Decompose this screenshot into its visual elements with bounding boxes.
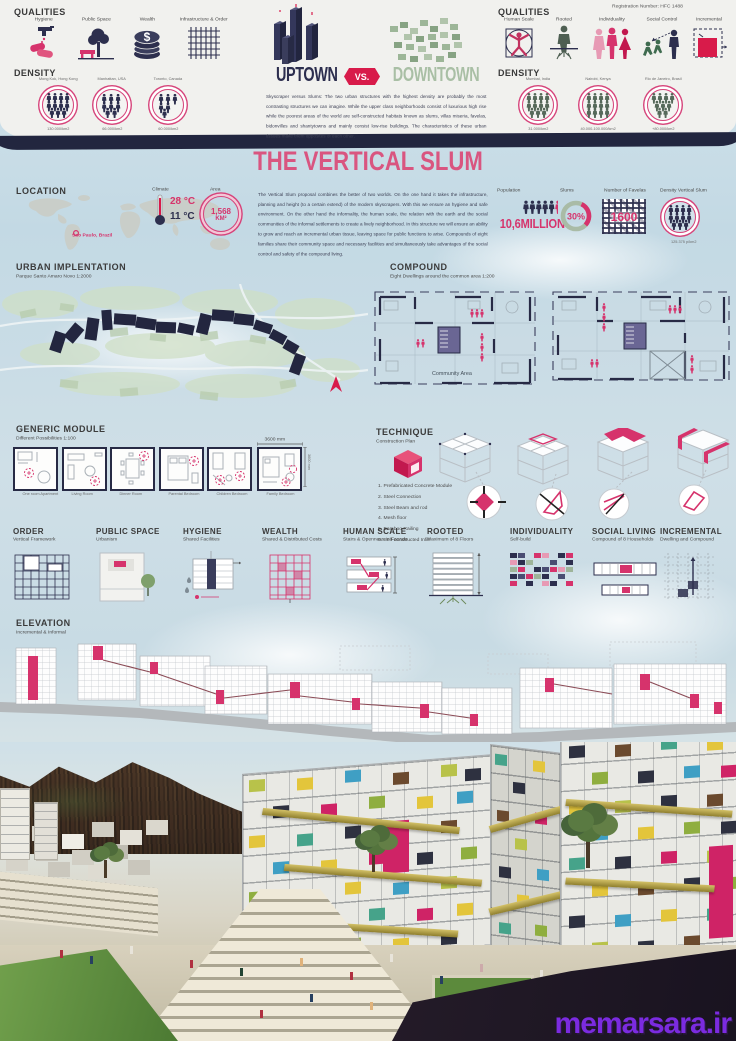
density-rio: Rio de Janeiro, Brasil +80.000/km2 — [630, 77, 696, 134]
render-photo: memarsara.ir — [0, 742, 736, 1041]
module-dim-horizontal: 3600 mm — [265, 436, 296, 442]
vs-label: VS. — [355, 72, 370, 82]
tree — [372, 850, 375, 872]
density-manhattan: Manhattan, USA 66.000/km2 — [82, 77, 142, 134]
city-name: Manhattan, USA — [98, 77, 126, 81]
elevation-title: ELEVATION — [16, 618, 71, 628]
quality-public-space: Public Space — [74, 16, 118, 61]
rooted-diagram — [427, 551, 487, 605]
social-living-diagram — [592, 555, 658, 609]
left-mid-building — [34, 802, 58, 860]
density-value: 40.000-100.000/km2 — [580, 127, 615, 131]
vertical-slum-density-label: Density Vertical Slum — [660, 187, 707, 193]
people-cluster-icon — [99, 92, 125, 118]
quality-label: Incremental — [696, 16, 722, 22]
compound-plan-1: Community Area — [372, 288, 538, 394]
module-one-room — [13, 447, 58, 491]
quality-hygiene: Hygiene — [24, 16, 64, 61]
principle-individuality: INDIVIDUALITY Self-build — [510, 527, 586, 558]
principle-title: INDIVIDUALITY — [510, 527, 586, 536]
gold-ramp — [489, 805, 566, 833]
people-on-plaza — [60, 950, 63, 958]
quality-label: Social Control — [647, 16, 678, 22]
principle-title: PUBLIC SPACE — [96, 527, 174, 536]
city-name: Mong Kok, Hong Kong — [39, 77, 78, 81]
density-circle — [582, 89, 614, 121]
poster: QUALITIES Hygiene Public Space Wealth $ … — [0, 0, 736, 1041]
module-label-6: Family Bedroom — [266, 492, 289, 496]
module-label-1: One room Apartment — [22, 492, 45, 496]
module-label-2: Living Room — [71, 492, 94, 496]
principle-public-space: PUBLIC SPACE Urbanism — [96, 527, 174, 605]
main-building-corner-facade — [490, 744, 564, 973]
temp-low: 11 °C — [170, 211, 195, 222]
density-value: +80.000/km2 — [652, 127, 674, 131]
density-circle — [152, 89, 184, 121]
svg-text:Community Area: Community Area — [432, 371, 472, 377]
module-dinner-room — [110, 447, 155, 491]
individuality-pixel-diagram — [510, 553, 517, 558]
population-label: Population — [497, 187, 520, 193]
principle-title: ORDER — [13, 527, 87, 536]
wealth-diagram — [262, 551, 318, 605]
principle-subtitle: Compound of 8 Households — [592, 536, 642, 542]
elevation-drawing — [0, 638, 736, 748]
left-tall-building — [0, 788, 30, 860]
density-circle — [647, 89, 679, 121]
temp-high: 28 °C — [170, 196, 195, 207]
principle-wealth: WEALTH Shared & Distributed Costs — [262, 527, 342, 605]
tree — [586, 838, 590, 868]
principle-order: ORDER Vertical Framework — [13, 527, 87, 603]
construction-sequence — [436, 428, 736, 522]
quality-incremental: Incremental — [686, 16, 732, 61]
urban-title: URBAN IMPLENTATION — [16, 262, 126, 272]
density-circle — [522, 89, 554, 121]
principle-title: ROOTED — [427, 527, 503, 536]
svg-text:30%: 30% — [567, 212, 585, 222]
downtown-blocks-icon — [390, 26, 398, 32]
vs-badge: VS. — [344, 68, 380, 85]
svg-text:$: $ — [144, 30, 151, 44]
gold-ramp — [488, 891, 566, 916]
quality-label: Human Scale — [504, 16, 534, 22]
incremental-diagram — [660, 551, 720, 605]
people-cluster-icon — [525, 92, 551, 118]
module-living-room — [62, 447, 107, 491]
watermark-link[interactable]: memarsara.ir — [555, 1007, 731, 1041]
quality-label: Wealth — [139, 16, 154, 22]
quality-social-control: Social Control — [636, 16, 688, 61]
density-value: 66.000/km2 — [102, 127, 122, 131]
quality-human-scale: Human Scale — [496, 16, 542, 61]
slums-donut: 30% — [558, 198, 594, 234]
main-title: THE VERTICAL SLUM — [0, 146, 736, 177]
area-label: Area — [210, 186, 220, 192]
people-cluster-icon — [155, 92, 181, 118]
city-name: Nairobi, Kenya — [585, 77, 610, 81]
population-people-icons — [494, 200, 558, 215]
location-marker-label: Sao Paulo, Brazil — [72, 232, 112, 238]
principle-subtitle: Shared & Distributed Costs — [262, 536, 312, 542]
density-mumbai: Mumbai, India 31.000/km2 — [508, 77, 568, 134]
favelas-qr-graphic: 1600 — [602, 199, 646, 234]
people-cluster-icon — [585, 92, 611, 118]
density-value: 60.000/km2 — [158, 127, 178, 131]
density-circle — [42, 89, 74, 121]
upper-stairs — [0, 872, 158, 937]
principle-rooted: ROOTED Maximum of 8 Floors — [427, 527, 503, 605]
tree-canopy — [94, 846, 110, 860]
module-family-bedroom — [257, 447, 302, 491]
principle-subtitle: Stairs & Openness in Facade — [343, 536, 393, 542]
tree-canopy — [568, 810, 594, 832]
principle-hygiene: HYGIENE Shared Facilities — [183, 527, 259, 605]
registration-number: Registration Number: HFC 1488 — [612, 3, 683, 9]
principle-subtitle: Maximum of 8 Floors — [427, 536, 474, 542]
principle-subtitle: Urbanism — [96, 536, 144, 542]
vitruvian-man-icon — [502, 25, 536, 61]
people-cluster-icon — [45, 92, 71, 118]
rooted-person-icon — [550, 25, 578, 61]
hand-wash-icon — [28, 25, 60, 61]
principle-subtitle: Self-build — [510, 536, 557, 542]
gold-ramp — [262, 808, 460, 834]
module-label-5: Children Bedroom — [216, 492, 239, 496]
principle-title: INCREMENTAL — [660, 527, 736, 536]
elevation-subtitle: Incremental & Informal — [16, 629, 66, 635]
principle-subtitle: Shared Facilities — [183, 536, 230, 542]
quality-label: Public Space — [82, 16, 111, 22]
principle-title: HYGIENE — [183, 527, 259, 536]
generic-module-title: GENERIC MODULE — [16, 424, 106, 434]
slums-label: Slums — [560, 187, 574, 193]
climate-label: Climate — [152, 186, 169, 192]
favelas-label: Number of Favelas — [604, 187, 646, 193]
thermometer-icon — [153, 194, 167, 226]
quality-label: Individuality — [599, 16, 625, 22]
people-cluster-icon — [667, 204, 693, 230]
quality-label: Hygiene — [35, 16, 53, 22]
module-label-4: Parental Bedroom — [168, 492, 191, 496]
compound-plan-2 — [550, 288, 732, 390]
incremental-icon — [690, 25, 728, 61]
principle-incremental: INCREMENTAL Dwelling and Compound — [660, 527, 736, 605]
principle-human-scale: HUMAN SCALE Stairs & Openness in Facade — [343, 527, 423, 605]
area-unit: KM² — [215, 216, 226, 222]
area-value: 1,568 — [211, 207, 231, 216]
principle-title: HUMAN SCALE — [343, 527, 423, 536]
favelas-value: 1600 — [611, 210, 638, 224]
city-name: Mumbai, India — [526, 77, 550, 81]
quality-label: Rooted — [556, 16, 572, 22]
tree — [104, 860, 107, 878]
technique-subtitle: Construction Plan — [376, 438, 415, 444]
urban-subtitle: Parque Santo Amaro Novo 1:2000 — [16, 273, 92, 279]
uptown-towers-icon — [266, 4, 330, 68]
density-mongkok: Mong Kok, Hong Kong 130.000/km2 — [28, 77, 88, 134]
grid-icon — [187, 25, 221, 61]
vertical-slum-density-value: 125.375 p/km2 — [671, 240, 693, 244]
city-name: Toronto, Canada — [154, 77, 182, 81]
tree-bench-icon — [78, 25, 114, 61]
coins-icon: $ — [130, 25, 164, 61]
city-name: Rio de Janeiro, Brasil — [645, 77, 682, 81]
principle-title: WEALTH — [262, 527, 342, 536]
gold-ramp — [565, 877, 715, 892]
vertical-slum-density-circle — [664, 201, 696, 233]
order-diagram — [13, 551, 71, 603]
quality-rooted: Rooted — [546, 16, 582, 61]
public-space-diagram — [96, 551, 156, 605]
density-circle — [96, 89, 128, 121]
area-badge: 1,568 KM² — [203, 196, 239, 232]
compound-title: COMPOUND — [390, 262, 448, 272]
density-value: 31.000/km2 — [528, 127, 548, 131]
compound-subtitle: Eight Dwellings around the common area 1… — [390, 273, 494, 279]
module-label-3: Dinner Room — [119, 492, 142, 496]
module-dim-vertical: 3600 mm — [307, 454, 311, 470]
quality-label: Infrastructure & Order — [180, 16, 228, 22]
concrete-module-icon — [392, 450, 424, 478]
urban-plan-map — [0, 284, 368, 420]
density-nairobi: Nairobi, Kenya 40.000-100.000/km2 — [566, 77, 630, 134]
downtown-label: DOWNTOWN — [376, 64, 496, 87]
hygiene-diagram — [183, 551, 245, 605]
colored-panels — [495, 754, 507, 766]
social-control-icon — [640, 25, 684, 61]
quality-wealth: Wealth $ — [126, 16, 168, 61]
colored-panels — [569, 745, 585, 758]
dim-line-h — [257, 442, 303, 446]
quality-individuality: Individuality — [588, 16, 636, 61]
technique-title: TECHNIQUE — [376, 427, 434, 437]
people-cluster-icon — [650, 92, 676, 118]
human-scale-diagram — [343, 551, 403, 605]
quality-infrastructure: Infrastructure & Order — [176, 16, 232, 61]
principle-subtitle: Vertical Framework — [13, 536, 59, 542]
module-parental-bedroom — [159, 447, 204, 491]
module-children-bedroom — [207, 447, 252, 491]
density-toronto: Toronto, Canada 60.000/km2 — [138, 77, 198, 134]
three-people-icon — [592, 25, 632, 61]
tree-canopy — [360, 830, 380, 847]
density-value: 130.000/km2 — [47, 127, 69, 131]
generic-module-subtitle: Different Possibilities 1:100 — [16, 435, 76, 441]
colored-panels — [249, 779, 265, 792]
principle-subtitle: Dwelling and Compound — [660, 536, 707, 542]
